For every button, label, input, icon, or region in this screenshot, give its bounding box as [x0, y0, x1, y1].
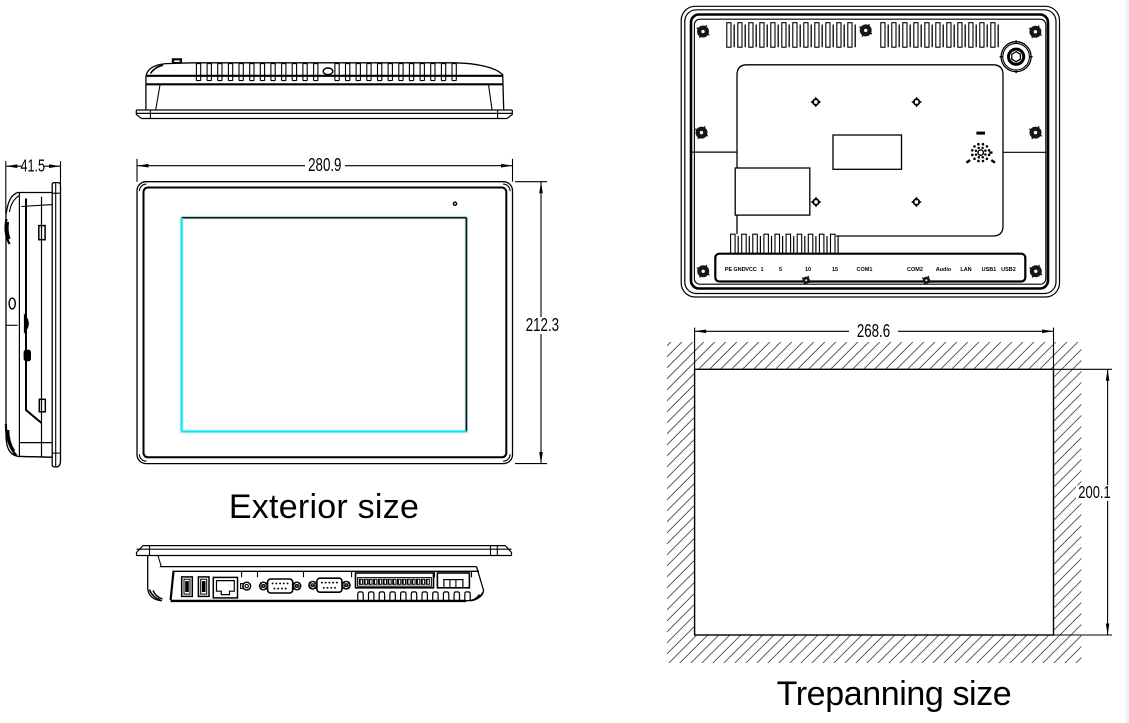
svg-text:212.3: 212.3 [526, 315, 559, 336]
svg-text:COM1: COM1 [857, 267, 873, 273]
svg-text:5: 5 [779, 267, 782, 273]
svg-text:COM2: COM2 [907, 267, 923, 273]
svg-text:200.1: 200.1 [1078, 483, 1110, 503]
svg-text:GND: GND [733, 267, 745, 273]
svg-text:15: 15 [832, 267, 838, 273]
svg-text:PE: PE [725, 267, 733, 273]
svg-text:Audio: Audio [936, 267, 952, 273]
svg-text:Exterior size: Exterior size [229, 488, 419, 526]
svg-text:41.5: 41.5 [20, 157, 45, 177]
svg-text:268.6: 268.6 [857, 321, 890, 342]
svg-text:Trepanning size: Trepanning size [777, 675, 1012, 713]
svg-text:VCC: VCC [745, 267, 757, 273]
svg-text:1: 1 [760, 267, 763, 273]
svg-text:USB2: USB2 [1001, 267, 1016, 273]
svg-text:USB1: USB1 [982, 267, 997, 273]
svg-text:10: 10 [805, 267, 811, 273]
svg-text:LAN: LAN [960, 267, 971, 273]
svg-text:280.9: 280.9 [308, 155, 341, 176]
